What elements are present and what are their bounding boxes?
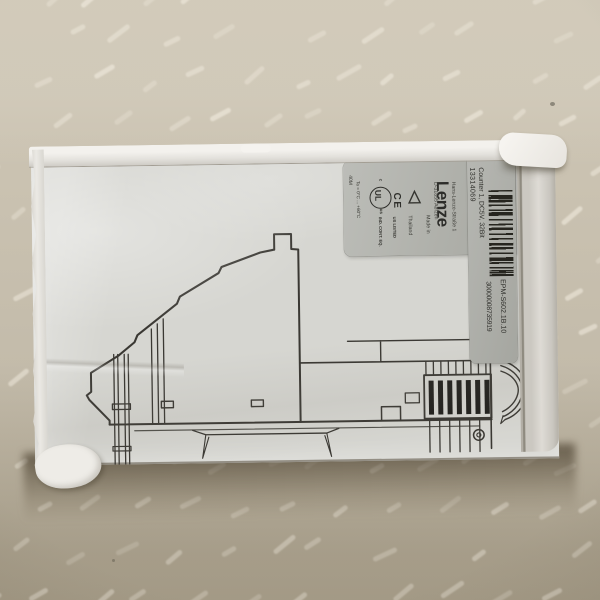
trowel-mark bbox=[418, 21, 436, 35]
trowel-mark bbox=[209, 107, 232, 122]
body-top-line bbox=[348, 340, 470, 363]
trowel-mark bbox=[453, 20, 474, 36]
ul-mark-c: c bbox=[378, 179, 383, 187]
trowel-mark bbox=[307, 30, 327, 44]
vent-slot bbox=[251, 400, 263, 407]
trowel-mark bbox=[33, 76, 52, 88]
trowel-mark bbox=[46, 0, 68, 8]
trowel-mark bbox=[7, 368, 30, 388]
ul-mark-us: us bbox=[379, 209, 384, 217]
trowel-mark bbox=[0, 592, 2, 600]
trowel-mark bbox=[561, 377, 588, 394]
trowel-mark bbox=[582, 74, 600, 91]
trowel-mark bbox=[287, 592, 308, 600]
trowel-mark bbox=[393, 583, 416, 600]
trowel-mark bbox=[372, 547, 398, 563]
temp-rating-text: Ta = 0°C ... +60°C bbox=[355, 181, 361, 225]
box-right-flap bbox=[517, 141, 559, 452]
trowel-mark bbox=[128, 588, 147, 600]
trowel-mark bbox=[244, 65, 266, 85]
trowel-mark bbox=[114, 109, 134, 125]
rail-tick bbox=[113, 446, 131, 451]
clip-notch bbox=[381, 407, 400, 421]
ul-listed-line2: IND. CONT. EQ. bbox=[377, 217, 382, 251]
trowel-mark bbox=[115, 541, 139, 556]
description-text: Counter 1, DC5V, 32Bit bbox=[476, 167, 485, 257]
trowel-mark bbox=[558, 114, 577, 127]
trowel-mark bbox=[263, 113, 283, 129]
trowel-mark bbox=[595, 246, 600, 264]
trowel-mark bbox=[184, 589, 209, 600]
trowel-mark bbox=[440, 580, 465, 599]
bottom-recess bbox=[193, 428, 339, 458]
trowel-mark bbox=[370, 110, 392, 126]
stepped-slope bbox=[117, 250, 274, 356]
trowel-mark bbox=[69, 23, 85, 35]
trowel-mark bbox=[553, 31, 574, 45]
trowel-mark bbox=[541, 588, 563, 600]
trowel-mark bbox=[487, 589, 512, 600]
small-port bbox=[405, 393, 419, 403]
address-line1: Hans-Lenze-Straße 1 bbox=[449, 182, 456, 244]
type-code-text: EPM-S602.1B.10 bbox=[498, 279, 507, 357]
trowel-mark bbox=[94, 63, 117, 79]
trowel-mark bbox=[241, 593, 262, 600]
screw-center bbox=[477, 433, 481, 437]
vent-slot bbox=[161, 401, 173, 408]
background-surface: Lenze Hans-Lenze-Straße 1 D-31855 Aerzen… bbox=[0, 0, 600, 600]
trowel-mark bbox=[442, 69, 461, 82]
trowel-mark bbox=[532, 0, 549, 6]
part-number-text: 13314069 bbox=[467, 167, 476, 215]
trowel-mark bbox=[295, 79, 311, 90]
top-edge-chip bbox=[241, 144, 271, 152]
trowel-mark bbox=[532, 72, 549, 85]
trowel-mark bbox=[185, 65, 205, 78]
trowel-mark bbox=[165, 549, 183, 566]
ul-listed-text: US LISTED IND. CONT. EQ. bbox=[368, 216, 406, 251]
trowel-mark bbox=[384, 0, 405, 7]
trowel-mark bbox=[571, 540, 593, 559]
trowel-mark bbox=[471, 549, 487, 562]
made-in-line2: Thailand bbox=[406, 215, 412, 251]
recycling-triangle-icon bbox=[407, 189, 421, 211]
trowel-mark bbox=[304, 108, 322, 120]
trowel-mark bbox=[12, 537, 30, 552]
trowel-mark bbox=[212, 23, 236, 40]
product-box: Lenze Hans-Lenze-Straße 1 D-31855 Aerzen… bbox=[31, 142, 559, 465]
barcode bbox=[488, 190, 513, 276]
trowel-mark bbox=[0, 0, 3, 8]
corner-code-text: 40M bbox=[346, 175, 352, 191]
made-in-line1: Made in bbox=[424, 215, 430, 251]
ul-mark-letters: UL bbox=[372, 190, 382, 206]
trowel-mark bbox=[162, 35, 180, 47]
trowel-mark bbox=[168, 114, 191, 131]
ul-listed-line1: US LISTED bbox=[391, 217, 396, 251]
trowel-mark bbox=[360, 26, 384, 45]
trowel-mark bbox=[80, 0, 100, 9]
trowel-mark bbox=[512, 108, 527, 122]
trowel-mark bbox=[463, 109, 484, 124]
slope-tab bbox=[274, 234, 301, 422]
trowel-mark bbox=[10, 206, 26, 221]
trowel-mark bbox=[97, 588, 116, 600]
trowel-mark bbox=[380, 73, 395, 87]
serial-number-text: 30000008735919 bbox=[484, 281, 493, 357]
trowel-mark bbox=[142, 80, 157, 93]
trowel-mark bbox=[336, 64, 363, 82]
trowel-mark bbox=[220, 545, 236, 557]
trowel-mark bbox=[272, 534, 296, 555]
flap-curled-corner bbox=[498, 132, 568, 169]
bottom-inner-line bbox=[135, 426, 480, 431]
screw-head bbox=[473, 430, 484, 441]
trowel-mark bbox=[578, 323, 598, 336]
dust-speck bbox=[112, 559, 115, 562]
trowel-mark bbox=[106, 24, 131, 44]
trowel-mark bbox=[561, 205, 584, 226]
trowel-mark bbox=[142, 0, 167, 7]
trowel-mark bbox=[577, 498, 597, 513]
trowel-mark bbox=[589, 160, 600, 177]
dust-speck bbox=[550, 102, 555, 106]
trowel-mark bbox=[303, 536, 322, 551]
trowel-mark bbox=[28, 587, 49, 600]
trowel-mark bbox=[179, 0, 203, 6]
trowel-mark bbox=[564, 287, 584, 301]
trowel-mark bbox=[402, 123, 418, 134]
trowel-mark bbox=[53, 112, 74, 129]
trowel-mark bbox=[66, 551, 87, 566]
trowel-mark bbox=[588, 410, 600, 429]
